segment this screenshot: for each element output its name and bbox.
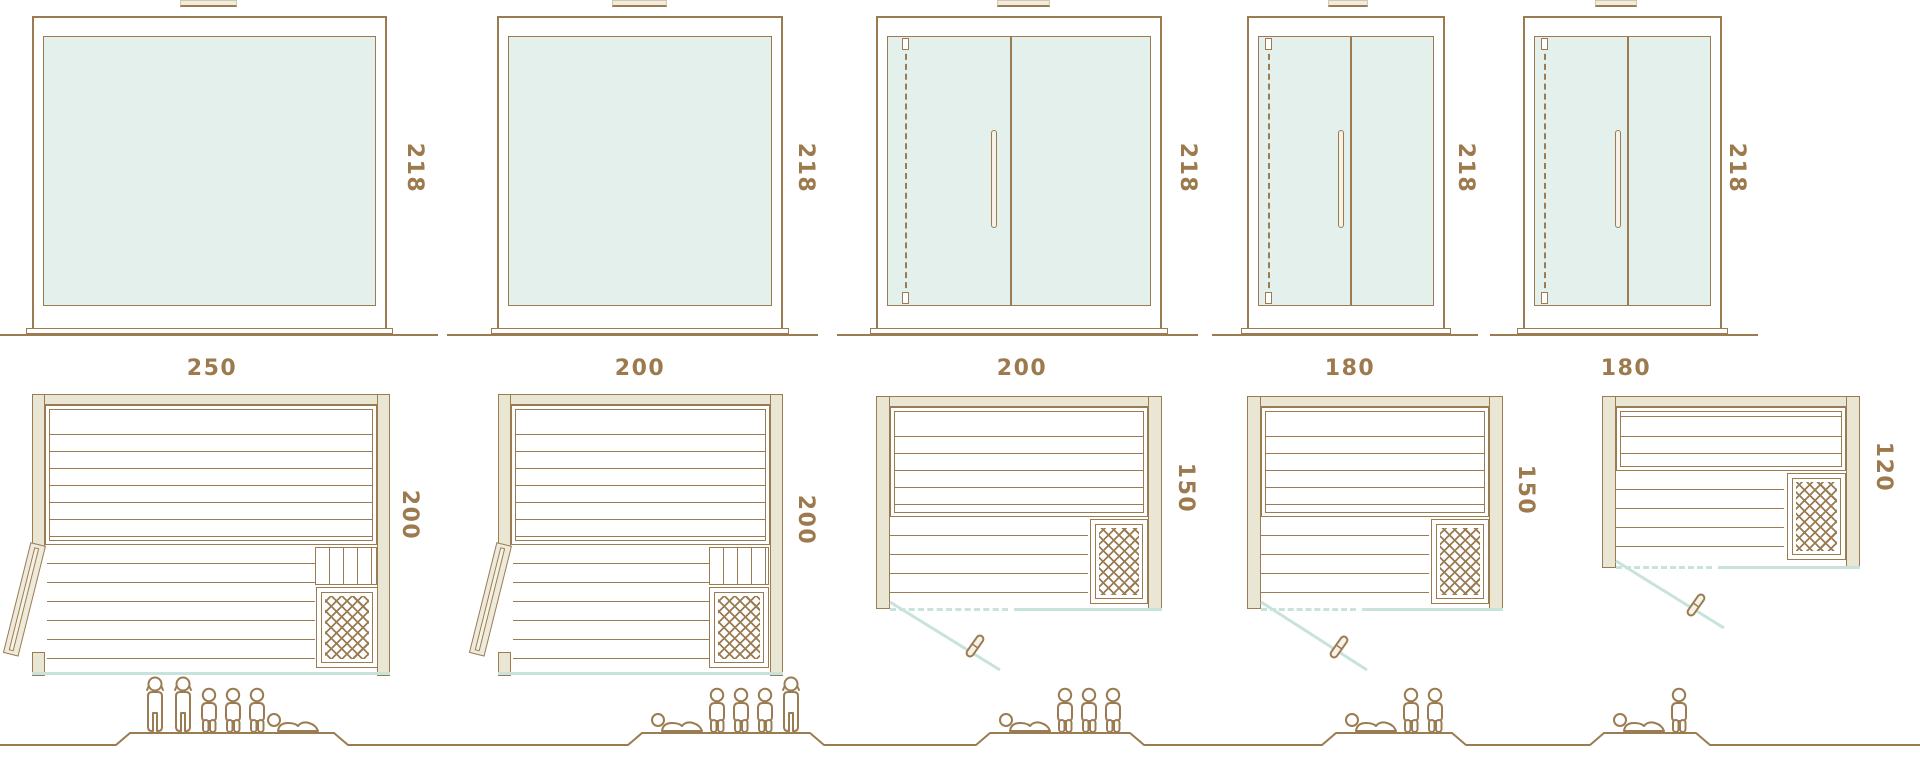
m5-plan-lower-bench-slats: [1616, 471, 1784, 563]
m4-door-hinge-top: [1265, 38, 1272, 50]
m1-height-label: 218: [402, 128, 428, 208]
m3-door-hinge-line: [905, 44, 907, 298]
m2-plan-bench-end-slats: [709, 547, 769, 585]
person-standing: [783, 678, 799, 732]
m1-plan-wall-right: [377, 394, 390, 676]
person-standing: [175, 678, 191, 732]
m4-heater: [1431, 519, 1489, 604]
person-seated: [1428, 689, 1442, 732]
m3-door-hinge-bottom: [902, 292, 909, 304]
m5-upper-bench-slats: [1620, 411, 1842, 467]
m3-plan-lower-bench-slats: [890, 517, 1088, 605]
m5-heater: [1787, 473, 1846, 560]
m4-width-label: 180: [1310, 355, 1390, 381]
m5-plan-wall-left: [1602, 396, 1616, 568]
m5-door-hinge-top: [1541, 38, 1548, 50]
m1-capacity-figures: [138, 673, 324, 733]
m2-plan-door-glass: [475, 547, 505, 651]
m4-glass-front-line: [1362, 608, 1503, 611]
m4-elevation-glass: [1258, 36, 1434, 306]
person-reclining: [1000, 714, 1050, 731]
m3-open-door-swing: [878, 594, 1010, 684]
m2-capacity-figures: [650, 673, 808, 733]
m2-plan-upper-bench: [511, 405, 770, 545]
m4-upper-bench-slats: [1265, 411, 1485, 513]
m3-glass-front-line: [1014, 608, 1162, 611]
ground-line-segment: [0, 334, 438, 336]
m5-plan-wall-right: [1846, 396, 1860, 568]
m5-depth-label: 120: [1871, 427, 1897, 507]
m2-elevation-glass: [508, 36, 772, 306]
m3-heater: [1090, 519, 1148, 604]
m3-upper-bench-slats: [894, 411, 1144, 513]
m1-upper-bench-slats: [49, 409, 373, 541]
m5-open-door-swing: [1604, 553, 1736, 643]
m1-plan-wall-left: [32, 394, 45, 548]
m4-plan-wall-right: [1489, 396, 1503, 609]
m3-plan-wall-top: [876, 396, 1162, 407]
m4-door-divider: [1350, 37, 1352, 305]
ground-line-segment: [447, 334, 818, 336]
person-seated: [1082, 689, 1096, 732]
m2-plan-open-door: [469, 542, 512, 656]
person-reclining: [268, 714, 318, 731]
m3-door-divider: [1010, 37, 1012, 305]
m5-capacity-figures: [1612, 673, 1694, 733]
m2-plan-wall-left: [498, 394, 511, 548]
m4-heater-grille: [1436, 524, 1484, 599]
m4-capacity-figures: [1344, 673, 1450, 733]
m1-plan-bench-end-slats: [315, 547, 377, 585]
m2-upper-bench-slats: [515, 409, 766, 541]
m3-roof-vent-tab: [997, 0, 1050, 7]
m1-plan-wall-top: [32, 394, 390, 405]
m3-heater-grille: [1095, 524, 1143, 599]
m1-plan-upper-bench: [45, 405, 377, 545]
m5-door-hinge-bottom: [1541, 292, 1548, 304]
m5-roof-vent-tab: [1595, 0, 1637, 7]
ground-line-segment: [837, 334, 1198, 336]
sauna-size-diagram: 218 250 218 200 218 200 218 180 218 180: [0, 0, 1920, 770]
m5-plan-wall-top: [1602, 396, 1860, 407]
ground-line-segment: [1212, 334, 1478, 336]
m3-height-label: 218: [1175, 128, 1201, 208]
m5-glass-front-line: [1718, 566, 1860, 569]
m3-door-handle: [991, 130, 997, 228]
person-seated: [202, 689, 216, 732]
m1-plan-door-glass: [9, 547, 39, 651]
m3-width-label: 200: [982, 355, 1062, 381]
m1-heater: [316, 587, 378, 668]
m2-heater: [709, 587, 769, 668]
m2-plan-lower-bench-slats: [513, 545, 709, 673]
person-seated: [1106, 689, 1120, 732]
m4-door-handle: [1338, 130, 1344, 228]
person-standing: [147, 678, 163, 732]
m4-depth-label: 150: [1513, 450, 1539, 530]
m2-depth-label: 200: [793, 480, 819, 560]
person-seated: [1404, 689, 1418, 732]
m5-heater-grille: [1792, 478, 1841, 555]
person-reclining: [1614, 714, 1664, 731]
m4-open-door-swing: [1249, 594, 1381, 684]
m1-elevation-glass: [43, 36, 376, 306]
m2-roof-vent-tab: [612, 0, 667, 7]
m1-roof-vent-tab: [180, 0, 237, 7]
m4-roof-vent-tab: [1328, 0, 1368, 7]
person-reclining: [652, 714, 702, 731]
m3-door-hinge-top: [902, 38, 909, 50]
m4-plan-upper-bench: [1261, 407, 1489, 517]
m1-plan-open-door: [3, 542, 46, 656]
m5-plan-upper-bench: [1616, 407, 1846, 471]
m5-door-divider: [1627, 37, 1629, 305]
m3-plan-wall-right: [1148, 396, 1162, 609]
m2-height-label: 218: [793, 128, 819, 208]
m2-plan-wall-top: [498, 394, 783, 405]
person-seated: [250, 689, 264, 732]
ground-line-segment: [1490, 334, 1758, 336]
m4-door-hinge-bottom: [1265, 292, 1272, 304]
m5-elevation-glass: [1534, 36, 1711, 306]
m4-door-hinge-line: [1268, 44, 1270, 298]
person-seated: [734, 689, 748, 732]
m3-depth-label: 150: [1173, 448, 1199, 528]
m4-plan-lower-bench-slats: [1261, 517, 1429, 605]
m1-depth-label: 200: [397, 475, 423, 555]
m1-width-label: 250: [172, 355, 252, 381]
m3-elevation-glass: [887, 36, 1151, 306]
person-seated: [226, 689, 240, 732]
person-reclining: [1346, 714, 1396, 731]
m5-width-label: 180: [1586, 355, 1666, 381]
m4-height-label: 218: [1453, 128, 1479, 208]
m4-plan-wall-left: [1247, 396, 1261, 609]
m2-heater-grille: [714, 592, 764, 663]
m1-plan-lower-bench-slats: [47, 545, 315, 673]
person-seated: [1058, 689, 1072, 732]
person-seated: [758, 689, 772, 732]
m5-door-hinge-line: [1544, 44, 1546, 298]
m3-plan-wall-left: [876, 396, 890, 609]
m3-capacity-figures: [998, 673, 1128, 733]
m5-door-handle: [1615, 130, 1621, 228]
m1-heater-grille: [321, 592, 373, 663]
m2-plan-wall-right: [770, 394, 783, 676]
m2-width-label: 200: [600, 355, 680, 381]
m4-plan-wall-top: [1247, 396, 1503, 407]
person-seated: [710, 689, 724, 732]
person-seated: [1672, 689, 1686, 732]
m3-plan-upper-bench: [890, 407, 1148, 517]
m5-height-label: 218: [1724, 128, 1750, 208]
